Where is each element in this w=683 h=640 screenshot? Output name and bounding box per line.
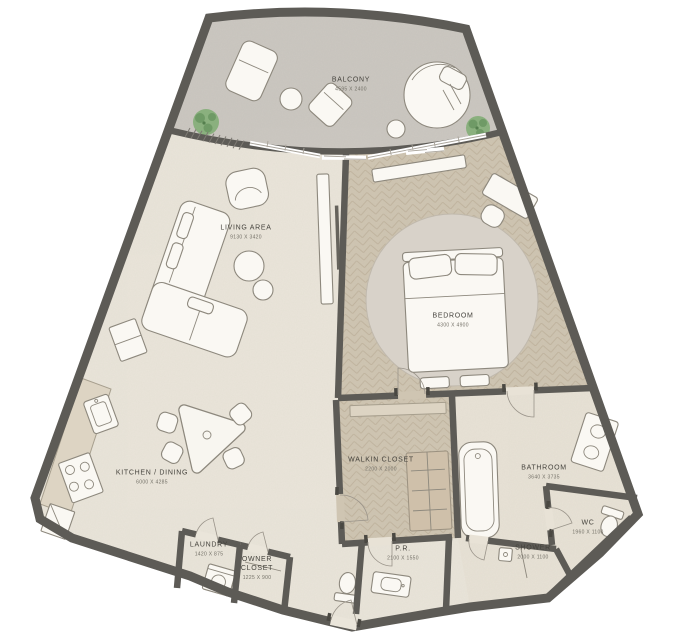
door-jamb xyxy=(392,533,396,541)
door-jamb xyxy=(534,382,538,390)
bed-bench xyxy=(460,374,490,387)
bathtub xyxy=(458,441,499,538)
bed xyxy=(402,247,509,389)
pr-door-opening xyxy=(368,541,392,543)
door-jamb xyxy=(502,384,506,392)
floor-plan-page: BALCONY 4595 X 2400 LIVING AREA 9130 X 3… xyxy=(0,0,683,640)
door-jamb xyxy=(394,388,398,396)
door-jamb xyxy=(426,387,430,395)
door-jamb xyxy=(364,535,368,543)
pr-vanity xyxy=(371,571,412,597)
plant-left xyxy=(193,109,219,135)
bathroom-door-opening xyxy=(506,390,534,391)
door-jamb xyxy=(335,487,339,495)
bedroom-door-opening xyxy=(398,395,426,396)
entrance-door-opening xyxy=(331,620,357,626)
wardrobe xyxy=(406,451,452,531)
side-table xyxy=(387,120,405,138)
coffee-table xyxy=(234,251,264,281)
owner-closet-door-opening xyxy=(248,547,268,552)
wc-door-opening xyxy=(548,508,551,530)
walkin-door-opening xyxy=(340,494,341,522)
floor-plan-svg xyxy=(0,0,683,640)
round-daybed xyxy=(404,62,470,128)
laundry-door-opening xyxy=(196,534,218,539)
pr-east-wall xyxy=(446,537,449,610)
shower-door-opening xyxy=(469,539,488,541)
bed-bench xyxy=(420,376,450,389)
coffee-table-small xyxy=(253,280,273,300)
door-jamb xyxy=(549,529,553,537)
pouf-table xyxy=(280,88,302,110)
